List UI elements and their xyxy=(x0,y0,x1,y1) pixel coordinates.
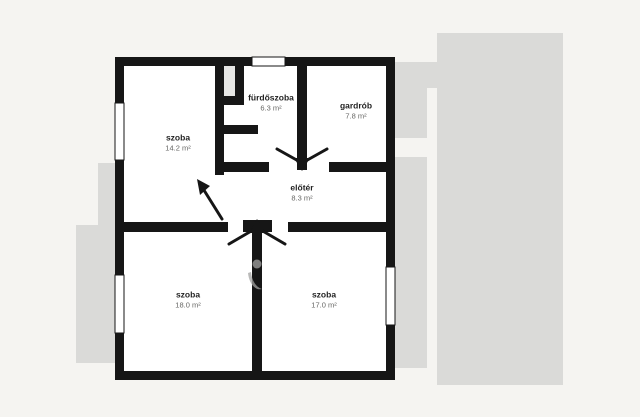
window-left-upper xyxy=(115,103,124,160)
wall-hall-top-right-segment xyxy=(329,162,395,172)
wall-hall-bottom-left-segment xyxy=(115,222,228,232)
window-right-lower xyxy=(386,267,395,325)
wall-bathroom-wardrobe-divider xyxy=(297,57,307,170)
wall-bathroom-partition-stub xyxy=(224,125,258,134)
wall-shaft-bottom xyxy=(215,96,244,105)
neighbor-area-left-block xyxy=(76,225,117,363)
neighbor-area-right-strip-lower xyxy=(395,157,427,368)
wall-room1-bathroom-divider xyxy=(215,57,224,175)
neighbor-area-right-connector xyxy=(427,62,437,88)
neighbor-area-right-strip-upper xyxy=(395,62,427,138)
wall-hall-top-left-segment xyxy=(215,162,269,172)
duct-shaft xyxy=(224,66,235,96)
window-top-bathroom xyxy=(252,57,285,66)
neighbor-area-right-block xyxy=(437,33,563,385)
wall-hall-bottom-right-segment xyxy=(288,222,395,232)
floorplan-drawing xyxy=(0,0,640,417)
floorplan-canvas: szoba 14.2 m² fürdőszoba 6.3 m² gardrób … xyxy=(0,0,640,417)
window-left-lower xyxy=(115,275,124,333)
wall-bottom-rooms-divider xyxy=(252,230,262,380)
wall-outer-right xyxy=(386,57,395,380)
neighbor-area-left-strip xyxy=(98,163,117,225)
